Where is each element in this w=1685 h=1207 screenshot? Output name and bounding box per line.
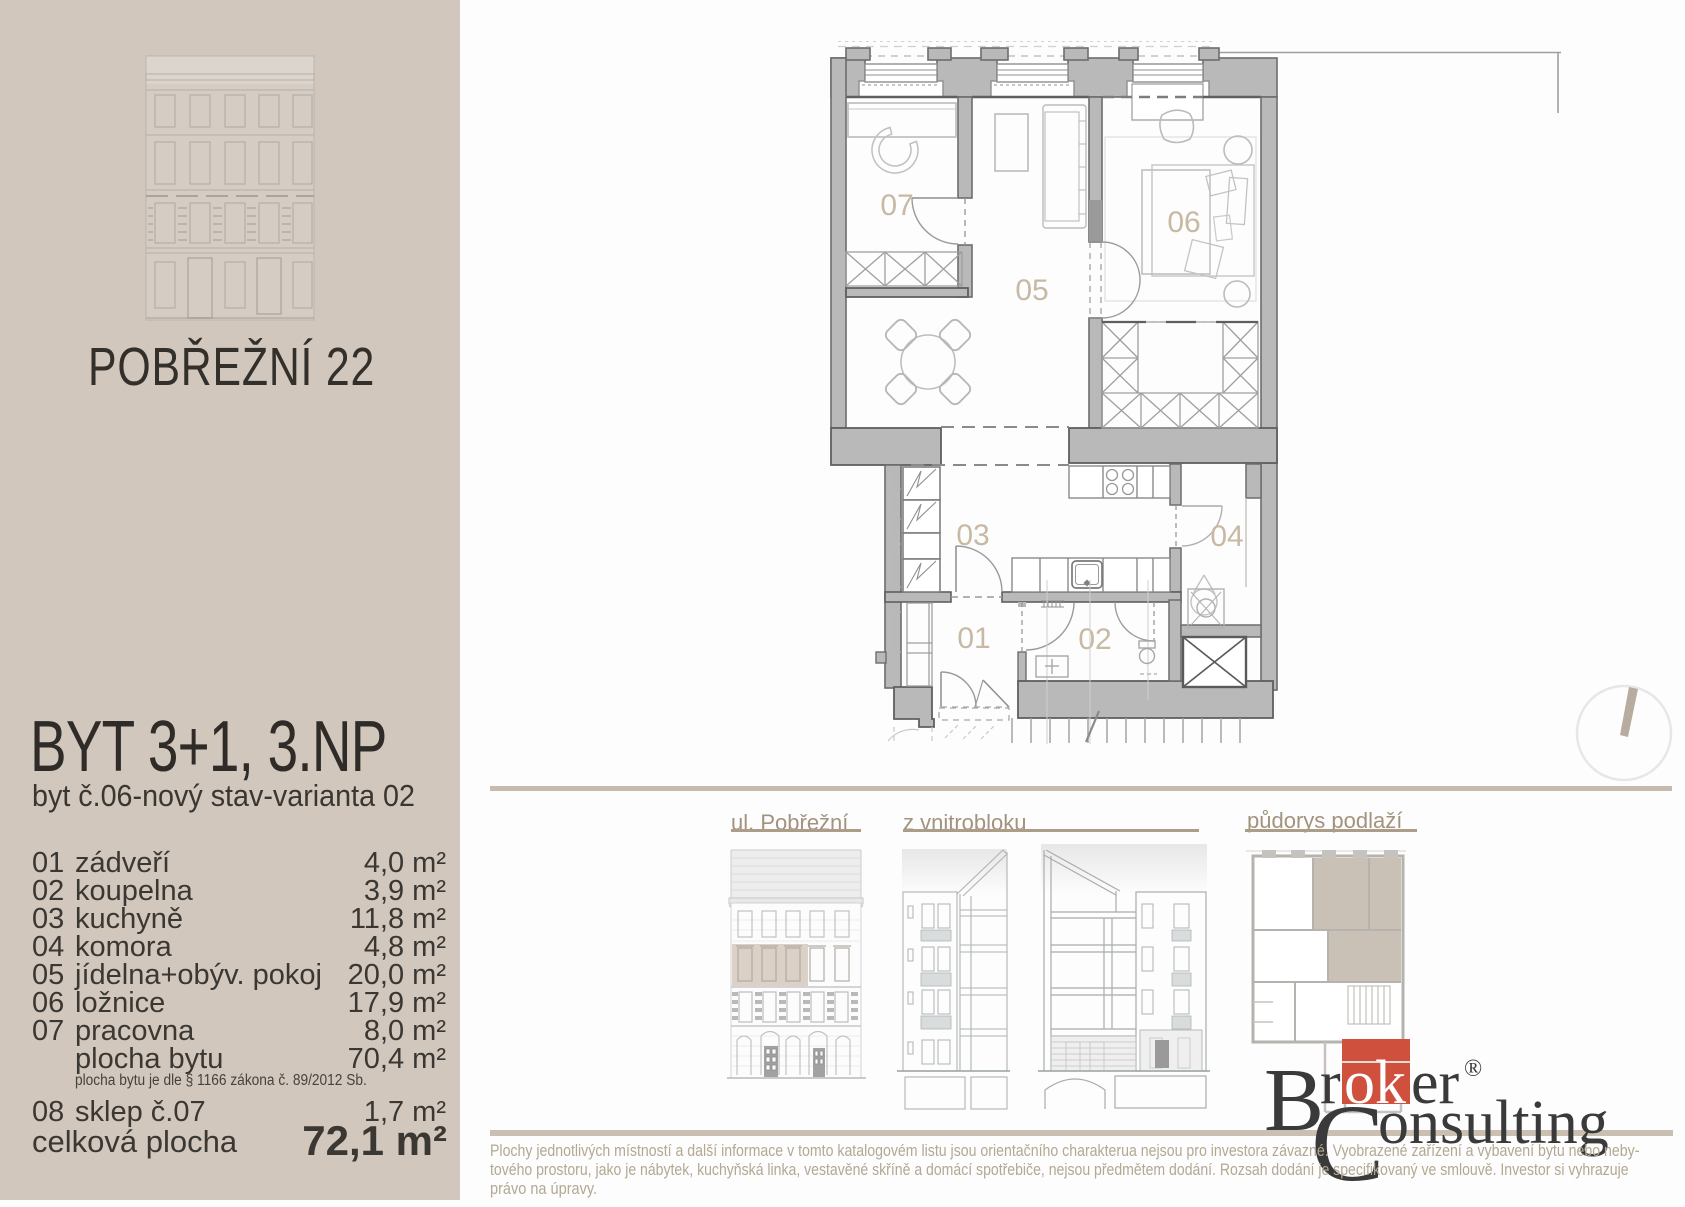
svg-text:04: 04 [1210, 520, 1243, 553]
svg-text:01: 01 [957, 622, 990, 655]
svg-text:07: 07 [880, 189, 913, 222]
svg-text:05: 05 [1015, 274, 1048, 307]
svg-text:03: 03 [956, 519, 989, 552]
svg-text:06: 06 [1167, 206, 1200, 239]
svg-text:02: 02 [1078, 623, 1111, 656]
